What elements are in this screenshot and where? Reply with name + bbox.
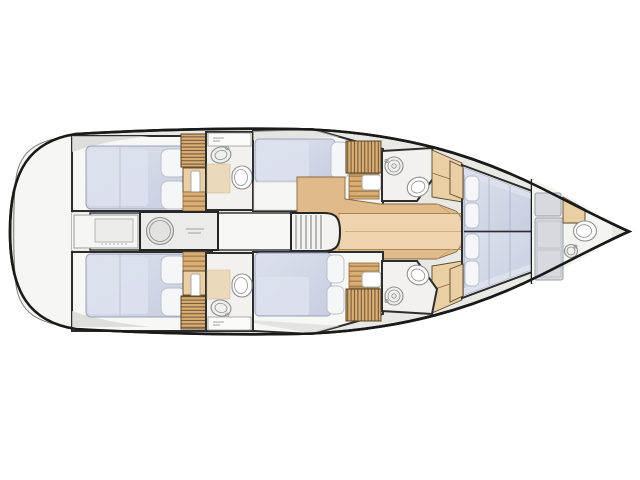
toilet-icon: [232, 274, 252, 297]
pillow: [161, 181, 186, 209]
shower-floor: [207, 270, 230, 299]
cabin-steps: [183, 252, 207, 271]
toilet-icon: [574, 221, 597, 241]
floorplan-svg: [0, 0, 640, 480]
washing-machine-icon: [140, 212, 218, 250]
pillow: [327, 255, 344, 283]
toilet-icon: [232, 166, 252, 189]
sink-icon: [565, 245, 578, 258]
sink-icon: [385, 287, 403, 305]
cabin-steps: [183, 192, 207, 211]
wood-grating: [181, 134, 207, 167]
yacht-floorplan-canvas: [0, 0, 640, 480]
pillow: [161, 256, 186, 284]
stern-platform: [14, 136, 72, 327]
door: [362, 175, 381, 190]
cabin-aft-port: [72, 134, 212, 211]
vanity: [208, 317, 251, 330]
sink-icon: [385, 157, 403, 175]
bow-shelf-starboard: [450, 264, 463, 302]
bathroom-aft-port: [206, 132, 253, 210]
shower-floor: [207, 164, 230, 193]
pillow: [331, 142, 348, 179]
center-corridor: [74, 212, 292, 250]
wood-grating: [181, 296, 207, 329]
bow-shelf-port: [450, 161, 463, 199]
bathroom-aft-starboard: [206, 253, 253, 331]
pillow: [327, 286, 344, 314]
mid-port-steps: [346, 141, 381, 199]
companionway-stairs: [291, 213, 340, 251]
cabin-aft-starboard: [72, 252, 212, 331]
vanity: [208, 133, 251, 146]
door: [362, 272, 381, 287]
